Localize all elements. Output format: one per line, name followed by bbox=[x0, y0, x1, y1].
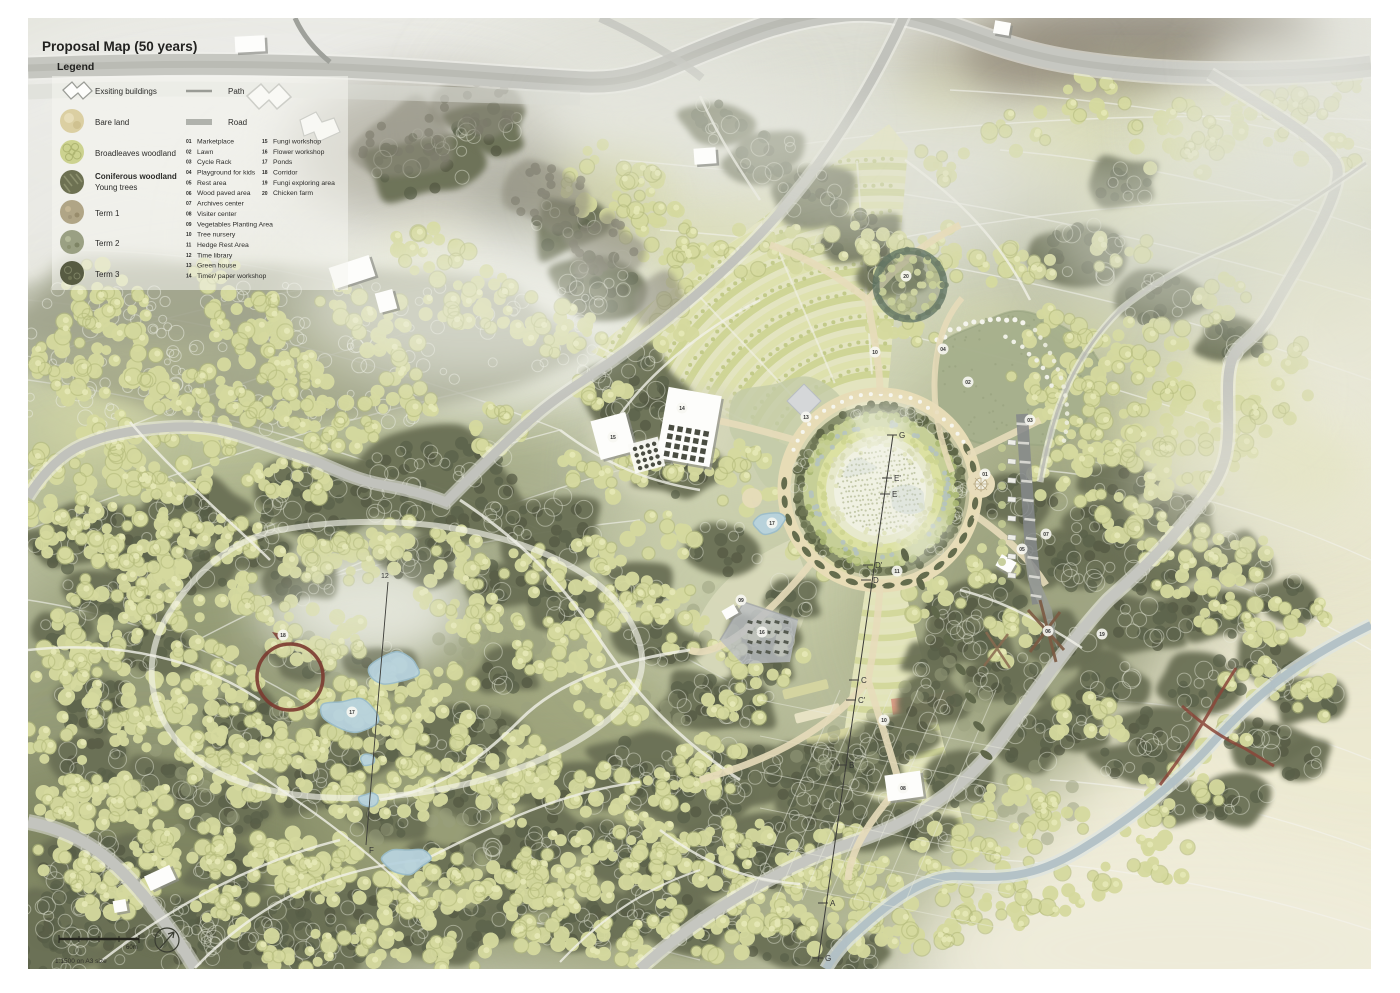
svg-text:14: 14 bbox=[679, 406, 685, 412]
svg-text:05: 05 bbox=[1019, 547, 1025, 553]
svg-text:Bare land: Bare land bbox=[95, 118, 129, 127]
svg-text:08: 08 bbox=[900, 786, 906, 792]
svg-text:Term 3: Term 3 bbox=[95, 270, 120, 279]
svg-text:1:1500 on A3 size: 1:1500 on A3 size bbox=[55, 958, 107, 965]
svg-text:16: 16 bbox=[759, 630, 765, 636]
svg-text:13: 13 bbox=[186, 263, 192, 269]
svg-text:03: 03 bbox=[186, 160, 192, 166]
svg-text:F: F bbox=[369, 846, 374, 855]
svg-text:Broadleaves woodland: Broadleaves woodland bbox=[95, 149, 176, 158]
svg-text:14: 14 bbox=[186, 274, 192, 280]
svg-text:11: 11 bbox=[186, 243, 192, 249]
svg-text:20: 20 bbox=[903, 274, 909, 280]
svg-text:60m: 60m bbox=[126, 945, 138, 951]
svg-text:12: 12 bbox=[186, 253, 192, 259]
svg-text:E: E bbox=[892, 490, 897, 499]
svg-text:04: 04 bbox=[186, 170, 192, 176]
svg-text:18: 18 bbox=[280, 633, 286, 639]
svg-text:18: 18 bbox=[262, 170, 268, 176]
svg-text:19: 19 bbox=[1099, 632, 1105, 638]
svg-text:Flower workshop: Flower workshop bbox=[273, 149, 325, 156]
svg-text:07: 07 bbox=[1043, 532, 1049, 538]
svg-text:Green house: Green house bbox=[197, 263, 237, 270]
svg-text:Tree nursery: Tree nursery bbox=[197, 232, 236, 239]
svg-text:G: G bbox=[825, 954, 831, 963]
svg-text:C: C bbox=[861, 676, 867, 685]
svg-text:20: 20 bbox=[262, 191, 268, 197]
svg-text:D': D' bbox=[875, 561, 883, 570]
svg-text:Playground for kids: Playground for kids bbox=[197, 170, 256, 177]
svg-text:Wood paved area: Wood paved area bbox=[197, 190, 251, 197]
svg-text:13: 13 bbox=[803, 415, 809, 421]
svg-text:10: 10 bbox=[881, 718, 887, 724]
svg-text:06: 06 bbox=[186, 191, 192, 197]
svg-text:16: 16 bbox=[262, 149, 268, 155]
svg-text:Lawn: Lawn bbox=[197, 149, 213, 156]
svg-text:Timer/ paper workshop: Timer/ paper workshop bbox=[197, 273, 266, 280]
svg-text:Hedge Rest Area: Hedge Rest Area bbox=[197, 242, 249, 249]
svg-text:Corridor: Corridor bbox=[273, 170, 298, 177]
svg-text:Young trees: Young trees bbox=[95, 183, 137, 192]
svg-text:E': E' bbox=[894, 474, 901, 483]
svg-text:C': C' bbox=[858, 696, 866, 705]
svg-text:02: 02 bbox=[186, 149, 192, 155]
svg-text:Legend: Legend bbox=[57, 61, 94, 73]
svg-text:Time library: Time library bbox=[197, 252, 233, 259]
svg-text:04: 04 bbox=[940, 347, 946, 353]
svg-text:01: 01 bbox=[982, 472, 988, 478]
svg-text:D: D bbox=[873, 576, 879, 585]
svg-text:02: 02 bbox=[965, 380, 971, 386]
svg-text:03: 03 bbox=[1027, 418, 1033, 424]
svg-text:09: 09 bbox=[186, 222, 192, 228]
svg-text:Road: Road bbox=[228, 118, 247, 127]
svg-text:Path: Path bbox=[228, 87, 244, 96]
svg-text:Fungi exploring area: Fungi exploring area bbox=[273, 180, 335, 187]
svg-text:Exsiting buildings: Exsiting buildings bbox=[95, 87, 157, 96]
svg-text:G: G bbox=[899, 431, 905, 440]
svg-text:10: 10 bbox=[186, 232, 192, 238]
svg-text:12: 12 bbox=[381, 573, 389, 580]
svg-text:Cycle Rack: Cycle Rack bbox=[197, 159, 232, 166]
svg-text:15: 15 bbox=[610, 435, 616, 441]
svg-text:17: 17 bbox=[769, 521, 775, 527]
svg-text:B: B bbox=[849, 761, 854, 770]
svg-text:15: 15 bbox=[262, 139, 268, 145]
svg-text:Archives center: Archives center bbox=[197, 201, 245, 208]
svg-text:Term 1: Term 1 bbox=[95, 209, 120, 218]
svg-text:A: A bbox=[830, 899, 836, 908]
svg-text:Term 2: Term 2 bbox=[95, 239, 120, 248]
svg-text:Visiter center: Visiter center bbox=[197, 211, 237, 218]
svg-text:10: 10 bbox=[872, 350, 878, 356]
svg-text:11: 11 bbox=[894, 569, 900, 575]
svg-text:09: 09 bbox=[738, 598, 744, 604]
svg-text:17: 17 bbox=[262, 160, 268, 166]
svg-text:Fungi workshop: Fungi workshop bbox=[273, 139, 321, 146]
svg-text:Ponds: Ponds bbox=[273, 159, 293, 166]
svg-text:08: 08 bbox=[186, 211, 192, 217]
svg-text:Rest area: Rest area bbox=[197, 180, 227, 187]
svg-text:Vegetables Planting Area: Vegetables Planting Area bbox=[197, 221, 273, 228]
svg-text:17: 17 bbox=[349, 710, 355, 716]
svg-text:Proposal Map (50 years): Proposal Map (50 years) bbox=[42, 39, 197, 54]
svg-text:05: 05 bbox=[186, 180, 192, 186]
svg-text:07: 07 bbox=[186, 201, 192, 207]
svg-text:06: 06 bbox=[1045, 629, 1051, 635]
svg-text:01: 01 bbox=[186, 139, 192, 145]
svg-text:19: 19 bbox=[262, 180, 268, 186]
svg-text:Marketplace: Marketplace bbox=[197, 139, 234, 146]
svg-text:Chicken farm: Chicken farm bbox=[273, 190, 313, 197]
svg-text:Coniferous woodland: Coniferous woodland bbox=[95, 172, 177, 181]
